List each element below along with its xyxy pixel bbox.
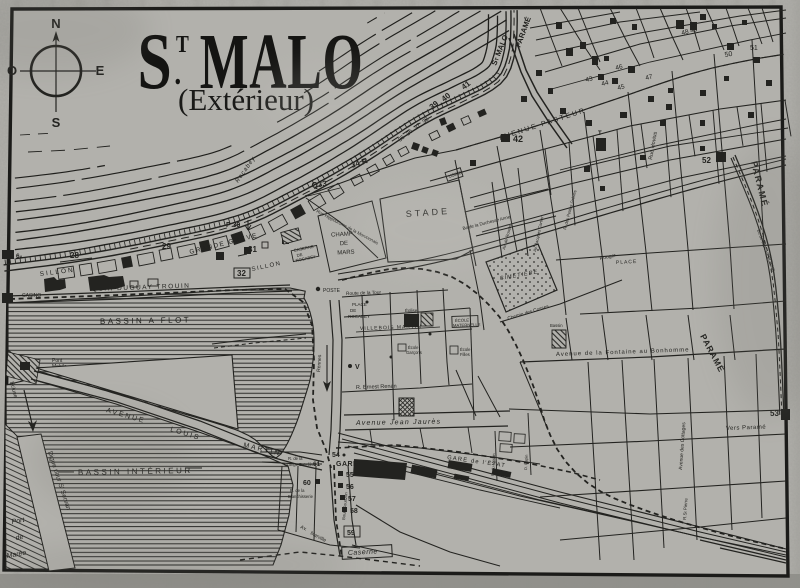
svg-text:6A: 6A (16, 253, 23, 260)
svg-text:60: 60 (303, 480, 311, 487)
svg-text:Bassin: Bassin (550, 323, 563, 328)
svg-text:57: 57 (348, 496, 356, 503)
svg-text:29: 29 (162, 242, 171, 251)
svg-text:Garçons: Garçons (406, 350, 422, 355)
svg-text:CHAMP: CHAMP (331, 231, 353, 238)
svg-text:V: V (355, 364, 360, 371)
svg-text:32: 32 (237, 269, 246, 278)
svg-text:R. de la: R. de la (288, 456, 303, 461)
svg-text:42: 42 (513, 134, 523, 144)
svg-text:Rennes: Rennes (316, 354, 323, 372)
svg-text:52: 52 (702, 156, 711, 165)
svg-text:S: S (52, 115, 61, 130)
svg-text:ROCABEY: ROCABEY (348, 314, 370, 319)
svg-text:31: 31 (248, 245, 257, 254)
svg-text:BASSIN A FLOT: BASSIN A FLOT (100, 315, 191, 326)
svg-text:de: de (15, 534, 24, 542)
svg-text:PLACE: PLACE (352, 302, 367, 307)
svg-text:Blanchisserie: Blanchisserie (288, 494, 314, 499)
svg-text:POSTE: POSTE (323, 288, 341, 294)
svg-text:51: 51 (750, 45, 758, 52)
svg-text:P 30: P 30 (226, 222, 240, 229)
svg-text:61: 61 (313, 461, 321, 468)
svg-text:MATERNELLE: MATERNELLE (453, 322, 481, 328)
svg-text:T: T (598, 131, 602, 137)
svg-text:MARS: MARS (337, 250, 355, 257)
svg-text:DE: DE (350, 308, 356, 313)
svg-text:GARE: GARE (336, 461, 358, 468)
svg-text:PLACE: PLACE (616, 259, 638, 266)
svg-text:55: 55 (346, 472, 354, 479)
svg-text:Filles: Filles (460, 352, 470, 357)
svg-text:DE: DE (340, 241, 349, 247)
svg-text:Route de la Tour: Route de la Tour (346, 290, 382, 297)
svg-text:50: 50 (724, 51, 733, 59)
svg-text:28: 28 (70, 251, 79, 260)
svg-text:Église: Église (405, 307, 418, 313)
svg-text:CASINO: CASINO (22, 293, 41, 299)
svg-text:54: 54 (332, 452, 340, 459)
